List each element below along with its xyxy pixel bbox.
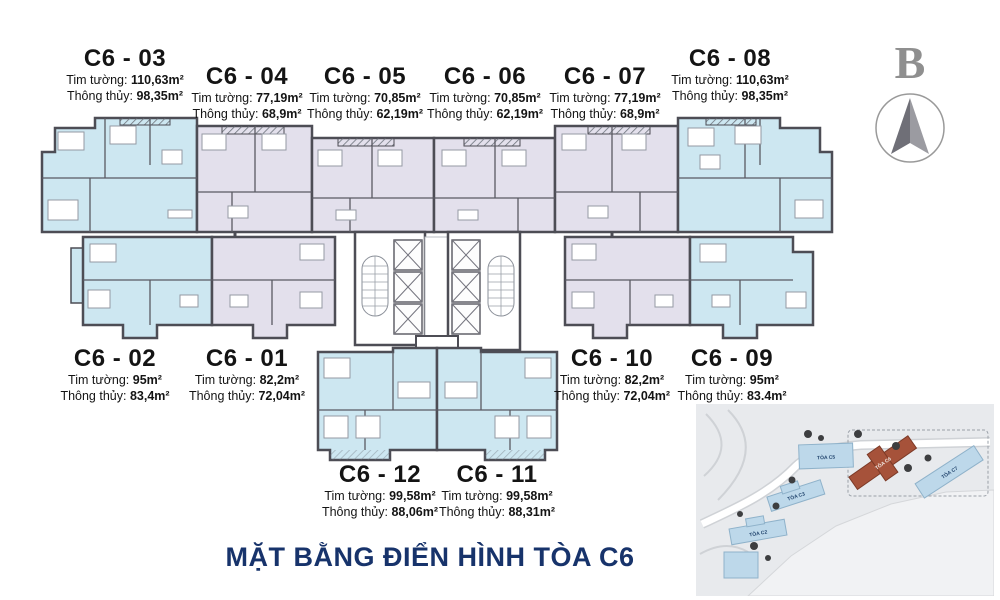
unit-label-c6-09: C6 - 09 Tim tường: 95m² Thông thủy: 83.4…: [649, 344, 815, 404]
unit-label-c6-11: C6 - 11 Tim tường: 99,58m² Thông thủy: 8…: [414, 460, 580, 520]
unit-label-c6-01: C6 - 01 Tim tường: 82,2m² Thông thủy: 72…: [164, 344, 330, 404]
unit-gross-area: Tim tường: 110,63m²: [638, 73, 822, 88]
elevator-shafts-left: [394, 240, 422, 334]
unit-code: C6 - 11: [414, 460, 580, 489]
unit-net-area: Thông thủy: 68,9m²: [522, 107, 688, 122]
unit-gross-area: Tim tường: 82,2m²: [164, 373, 330, 388]
stairs-left: [362, 256, 388, 316]
unit-gross-area: Tim tường: 95m²: [649, 373, 815, 388]
bottom-balcony-rails: [330, 450, 545, 460]
unit-code: C6 - 01: [164, 344, 330, 373]
stairs-right: [488, 256, 514, 316]
core-right: [448, 232, 520, 350]
unit-net-area: Thông thủy: 98,35m²: [638, 89, 822, 104]
unit-net-area: Thông thủy: 72,04m²: [164, 389, 330, 404]
site-map-building-unlabeled: [724, 552, 758, 578]
unit-net-area: Thông thủy: 83.4m²: [649, 389, 815, 404]
core-left: [355, 232, 425, 345]
compass: B: [872, 40, 948, 166]
unit-code: C6 - 09: [649, 344, 815, 373]
unit-label-c6-08: C6 - 08 Tim tường: 110,63m² Thông thủy: …: [638, 44, 822, 104]
elevator-shafts-right: [452, 240, 480, 334]
compass-north-letter: B: [872, 40, 948, 86]
bottom-block-units: [318, 348, 557, 460]
balcony-left-step: [71, 248, 83, 303]
core-corridor: [425, 237, 448, 342]
site-map: TÒA C5 TÒA C6 TÒA C7 TÒA C3 TÒA C2: [696, 404, 994, 596]
compass-north-icon: [872, 86, 948, 166]
site-map-building-toa-c5: TÒA C5: [799, 443, 854, 469]
unit-code: C6 - 08: [638, 44, 822, 73]
unit-net-area: Thông thủy: 88,31m²: [414, 505, 580, 520]
page-title: MẶT BẰNG ĐIỂN HÌNH TÒA C6: [150, 542, 710, 573]
unit-gross-area: Tim tường: 99,58m²: [414, 489, 580, 504]
